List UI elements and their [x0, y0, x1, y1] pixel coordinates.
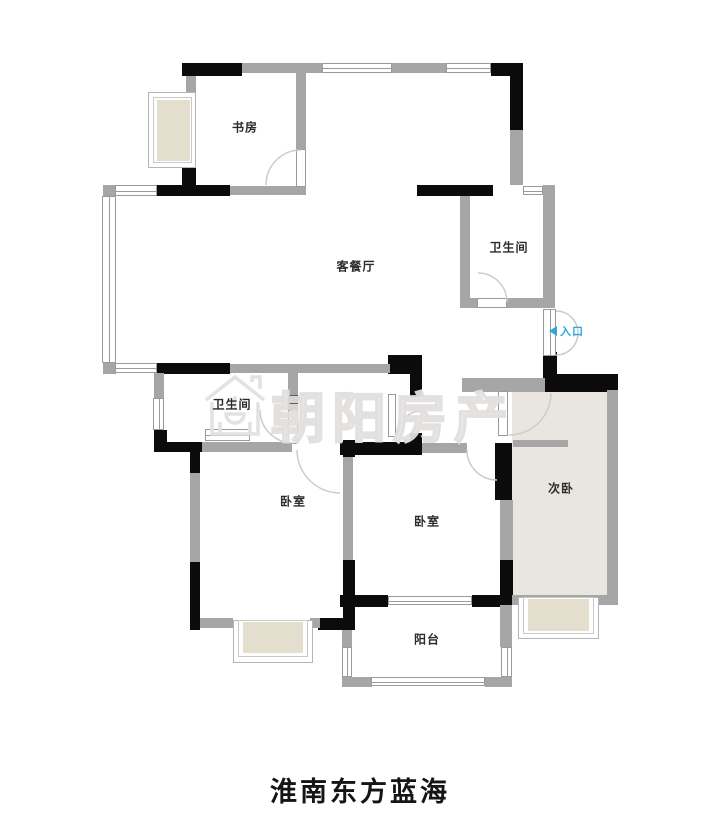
- room-label-living-dining: 客餐厅: [336, 258, 375, 275]
- room-label-bedroom-left: 卧室: [280, 493, 306, 510]
- room-label-balcony: 阳台: [414, 631, 440, 648]
- room-label-bathroom-mid: 卫生间: [212, 396, 251, 413]
- entrance-arrow-icon: [549, 326, 557, 336]
- room-label-bathroom-top: 卫生间: [489, 239, 528, 256]
- floor-plan: 朝阳房产 书房 客餐厅 卫生间 卫生间 卧室 卧室 次卧 阳台 入口 淮南东方蓝…: [0, 0, 720, 817]
- room-label-bedroom-mid: 卧室: [414, 513, 440, 530]
- entrance-label: 入口: [560, 323, 584, 339]
- room-label-study: 书房: [232, 119, 258, 136]
- plan-title: 淮南东方蓝海: [0, 770, 720, 809]
- watermark-text: 朝阳房产: [271, 374, 515, 453]
- entrance-marker: 入口: [549, 323, 584, 339]
- room-label-bedroom-right: 次卧: [548, 480, 574, 497]
